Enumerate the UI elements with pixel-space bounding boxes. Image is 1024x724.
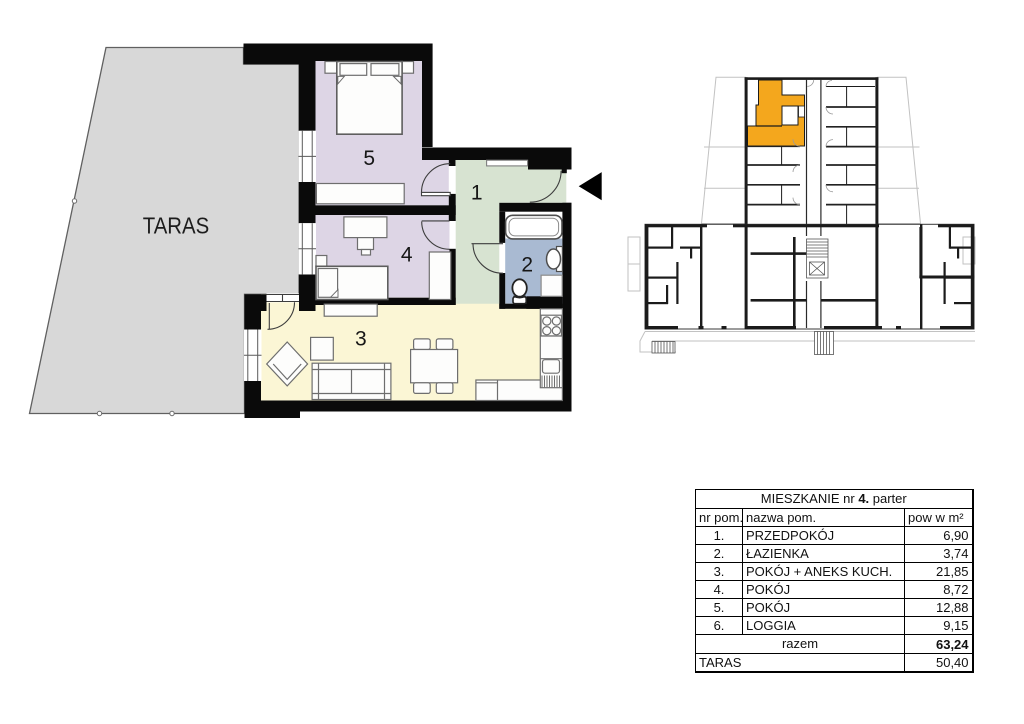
svg-text:3: 3	[355, 328, 367, 351]
svg-text:4: 4	[401, 244, 413, 267]
svg-text:1: 1	[471, 182, 483, 205]
svg-text:5: 5	[363, 147, 375, 170]
svg-text:2: 2	[521, 254, 533, 277]
svg-text:TARAS: TARAS	[143, 212, 210, 238]
